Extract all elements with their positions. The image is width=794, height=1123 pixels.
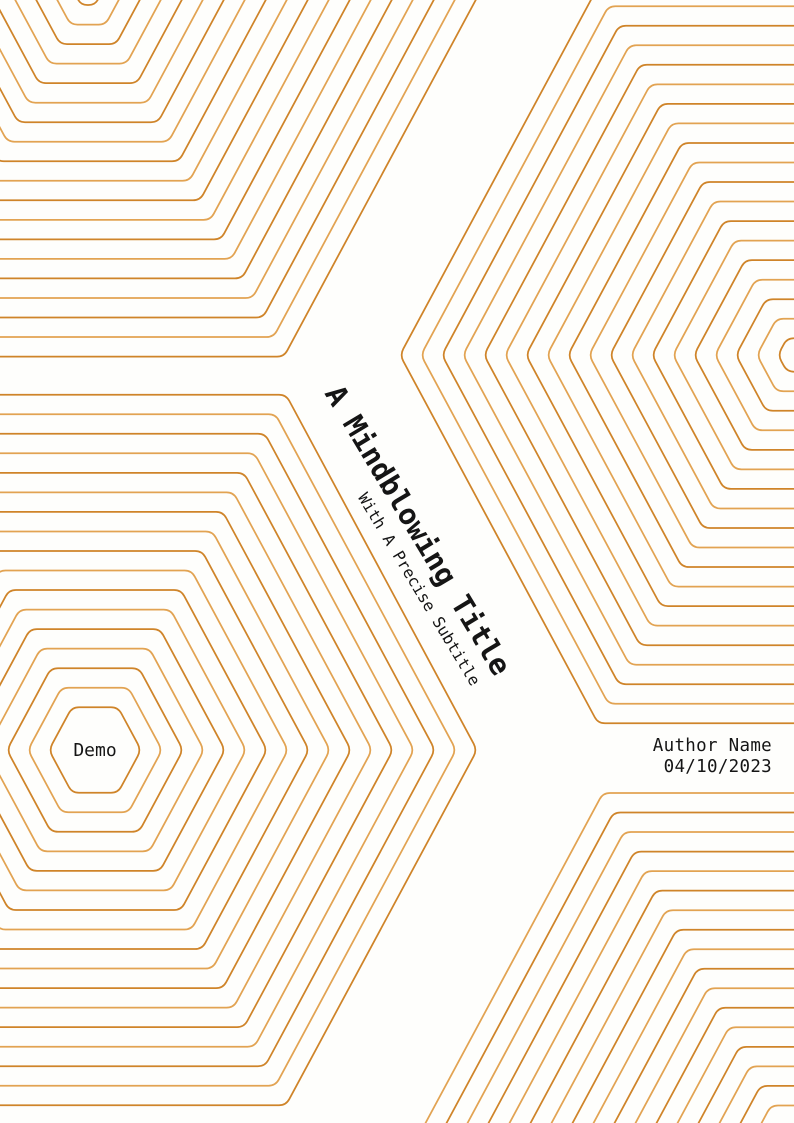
hexagon-ring — [34, 0, 143, 44]
title-page: A Mindblowing Title With A Precise Subti… — [0, 0, 794, 1123]
hexagon-ring — [503, 891, 794, 1123]
author-name: Author Name — [653, 736, 772, 757]
hexagon-ring — [549, 123, 794, 586]
demo-badge: Demo — [51, 739, 139, 763]
publish-date: 04/10/2023 — [653, 757, 772, 778]
hexagon-ring — [13, 0, 164, 64]
hexagon-ring — [465, 45, 794, 664]
hexagon-ring — [0, 0, 352, 239]
hexagon-ring — [633, 202, 794, 509]
hexagon-ring — [0, 0, 478, 357]
hexagon-ring — [738, 299, 794, 411]
hexagon-ring — [0, 0, 205, 103]
hexagon-ring — [717, 280, 794, 431]
hexagon-ring — [0, 0, 457, 337]
hexagon-ring — [570, 143, 794, 567]
hexagon-ring — [566, 949, 794, 1123]
hexagon-ring — [0, 551, 307, 949]
hexagon-ring — [675, 241, 794, 470]
hexagon-ring — [0, 0, 310, 200]
hexagon-ring — [612, 182, 794, 528]
hexagon-ring — [398, 793, 794, 1123]
author-block: Author Name 04/10/2023 — [653, 736, 772, 778]
hexagon-ring — [461, 852, 794, 1123]
hexagon-ring — [0, 571, 286, 930]
hexagon-ring — [759, 319, 794, 392]
hexagon-ring — [0, 0, 184, 83]
hexagon-ring — [0, 0, 247, 142]
hexagon-ring — [507, 84, 794, 625]
hexagon-ring — [444, 26, 794, 684]
hexagon-ring — [419, 813, 794, 1123]
hexagon-ring — [0, 532, 328, 969]
hexagon-ring — [76, 0, 101, 5]
hexagon-ring — [671, 1047, 794, 1123]
hexagon-ring — [55, 0, 122, 25]
hexagon-ring — [713, 1086, 794, 1123]
hexagon-ring — [0, 0, 331, 220]
hexagon-ring — [629, 1008, 794, 1123]
hexagon-ring — [0, 0, 268, 161]
hexagon-ring — [780, 338, 794, 371]
hexagon-ring — [528, 104, 794, 606]
hexagon-ring — [486, 65, 794, 645]
hexagon-ring — [692, 1066, 794, 1123]
hexagon-ring — [482, 871, 794, 1123]
hexagon-ring — [650, 1027, 794, 1123]
